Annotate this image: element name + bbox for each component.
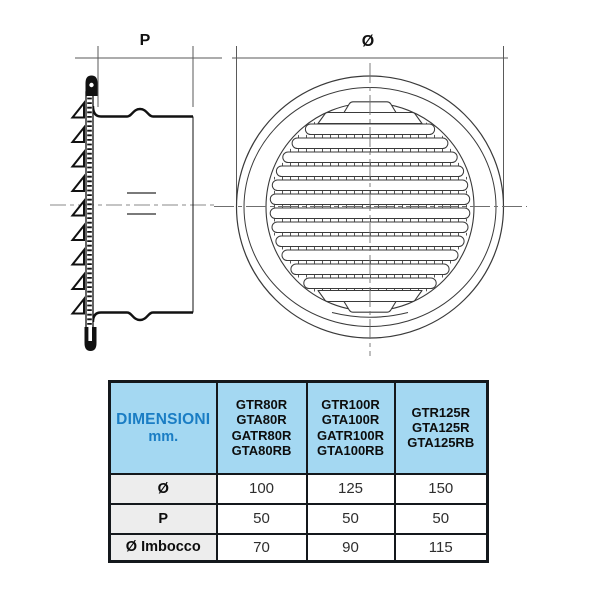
diameter-value-80: 100 — [217, 474, 307, 504]
depth-value-100: 50 — [307, 504, 395, 534]
model-column-80: GTR80R GTA80R GATR80R GTA80RB — [217, 382, 307, 474]
row-label-imbocco: Ø Imbocco — [110, 534, 217, 562]
dimensions-header-cell: DIMENSIONI mm. — [110, 382, 217, 474]
dimensions-table-container: DIMENSIONI mm. GTR80R GTA80R GATR80R GTA… — [108, 380, 486, 560]
depth-value-80: 50 — [217, 504, 307, 534]
row-label-diameter: Ø — [110, 474, 217, 504]
serrated-teeth — [73, 103, 85, 314]
model-column-125: GTR125R GTA125R GTA125RB — [395, 382, 488, 474]
dimensions-header-line1: DIMENSIONI — [111, 411, 216, 429]
table-header-row: DIMENSIONI mm. GTR80R GTA80R GATR80R GTA… — [110, 382, 488, 474]
dimension-label-diameter: Ø — [362, 33, 374, 50]
front-view-drawing: Ø — [214, 33, 527, 356]
rolled-rim-top — [86, 76, 98, 97]
technical-drawing: P — [0, 0, 600, 376]
flange-strip — [86, 92, 93, 330]
page: P — [0, 0, 600, 592]
row-label-depth: P — [110, 504, 217, 534]
table-row-imbocco: Ø Imbocco 70 90 115 — [110, 534, 488, 562]
table-row-diameter: Ø 100 125 150 — [110, 474, 488, 504]
diameter-value-125: 150 — [395, 474, 488, 504]
model-column-100: GTR100R GTA100R GATR100R GTA100RB — [307, 382, 395, 474]
duct-bottom-edge — [93, 313, 193, 323]
rolled-rim-bottom — [85, 327, 97, 351]
table-row-depth: P 50 50 50 — [110, 504, 488, 534]
dimension-label-p: P — [140, 32, 151, 49]
dimensions-table: DIMENSIONI mm. GTR80R GTA80R GATR80R GTA… — [108, 380, 489, 563]
dimensions-header-line2: mm. — [111, 429, 216, 445]
side-view-drawing: P — [50, 32, 222, 351]
diameter-value-100: 125 — [307, 474, 395, 504]
duct-top-edge — [93, 106, 193, 117]
depth-value-125: 50 — [395, 504, 488, 534]
imbocco-value-80: 70 — [217, 534, 307, 562]
imbocco-value-125: 115 — [395, 534, 488, 562]
imbocco-value-100: 90 — [307, 534, 395, 562]
